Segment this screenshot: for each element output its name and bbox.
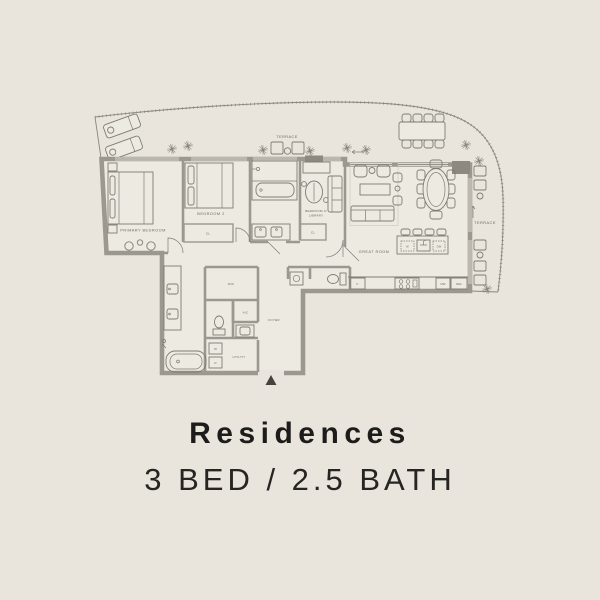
entry-arrow (266, 375, 277, 385)
bed-bath-subtitle: 3 BED / 2.5 BATH (0, 462, 600, 498)
bedroom-2-closet-label: CL (206, 232, 210, 236)
bedroom-3-label-2: LIBRARY (309, 214, 324, 218)
utility-label: UTILITY (233, 355, 246, 359)
washer-label: W (214, 347, 217, 351)
bedroom-3-closet-label: CL (311, 231, 315, 235)
island-right-label: DW (437, 245, 442, 249)
bedroom-2-bed (185, 163, 233, 208)
refrigerator-label: REF (456, 282, 462, 286)
bedroom-3-sofa (328, 176, 342, 212)
page: { "title": "Residences", "subtitle": "3 … (0, 0, 600, 600)
terrace-right-label: TERRACE (474, 220, 496, 225)
bedroom-2-label: BEDROOM 2 (197, 211, 224, 216)
wic-label: WIC (228, 282, 235, 286)
bedroom-3-label-1: BEDROOM 3/ (305, 209, 326, 213)
pantry-label: P (357, 282, 359, 286)
island-left-label: W (406, 245, 409, 249)
terrace-outdoor-dining (399, 114, 445, 148)
caption: Residences 3 BED / 2.5 BATH (0, 417, 600, 498)
unit-walls (102, 156, 471, 374)
ac-label: A/C (243, 311, 249, 315)
microwave-label: MW (441, 282, 446, 286)
floor-plan-svg: TERRACE TERRACE (0, 0, 600, 600)
terrace-lounge-chairs (103, 113, 144, 160)
primary-bed (108, 172, 153, 224)
floor-plan-image: TERRACE TERRACE (0, 0, 600, 600)
terrace-top-label: TERRACE (276, 134, 298, 139)
great-room-label: GREAT ROOM (359, 249, 390, 254)
foyer-label: FOYER (268, 318, 280, 322)
terrace-right: TERRACE (471, 166, 496, 285)
primary-bedroom-label: PRIMARY BEDROOM (120, 228, 166, 233)
residences-title: Residences (0, 417, 600, 451)
